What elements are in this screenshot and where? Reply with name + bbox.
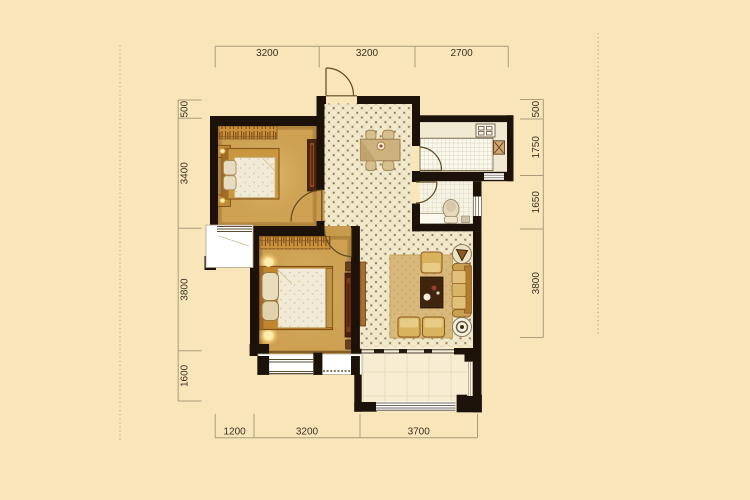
svg-text:3700: 3700 [408, 427, 431, 438]
svg-text:3800: 3800 [180, 278, 191, 301]
svg-text:3200: 3200 [296, 427, 319, 438]
svg-text:2700: 2700 [450, 48, 473, 59]
svg-text:3200: 3200 [256, 48, 279, 59]
svg-text:1600: 1600 [180, 364, 191, 387]
svg-text:500: 500 [180, 100, 191, 117]
svg-text:3400: 3400 [180, 162, 191, 185]
svg-text:1200: 1200 [223, 427, 246, 438]
svg-text:1650: 1650 [531, 191, 542, 214]
svg-text:3200: 3200 [356, 48, 379, 59]
svg-text:1750: 1750 [531, 136, 542, 159]
svg-text:3800: 3800 [531, 272, 542, 295]
svg-text:500: 500 [531, 100, 542, 117]
